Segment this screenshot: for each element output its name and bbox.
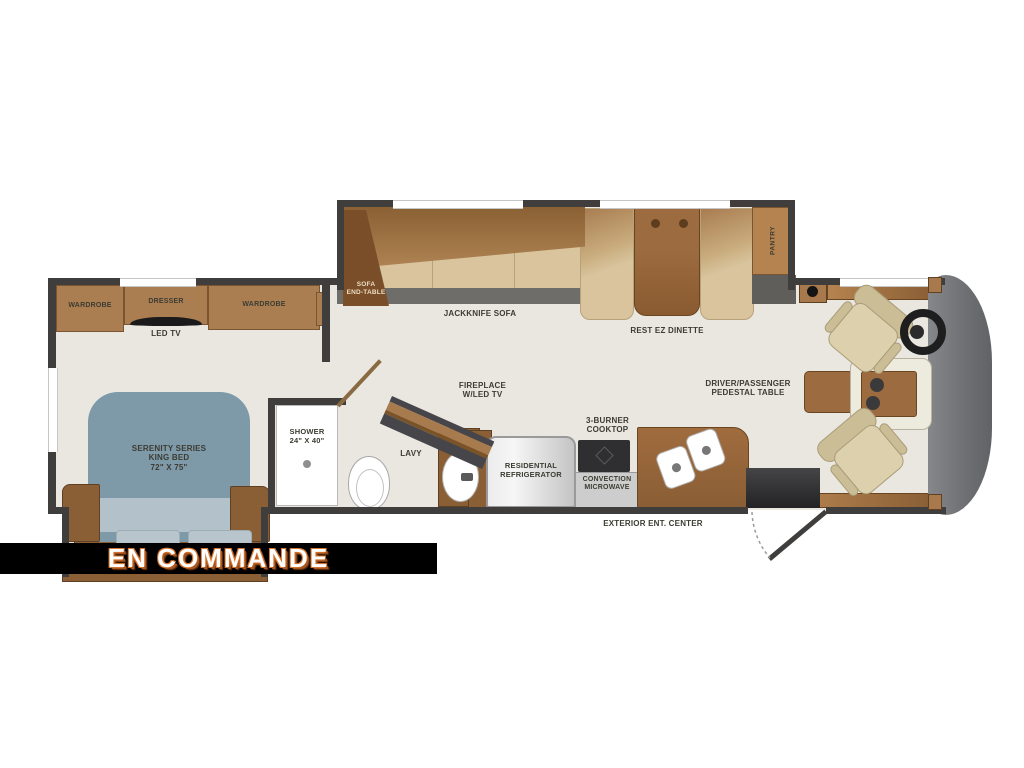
faucet-icon (461, 473, 473, 481)
bedroom-tv-icon (130, 317, 202, 326)
cap-trim (928, 494, 942, 510)
exterior-center-label: EXTERIOR ENT. CENTER (594, 519, 712, 528)
slideout-wall-left (337, 200, 344, 290)
sink-drain (671, 462, 683, 474)
cap-trim (928, 277, 942, 293)
wall-bottom-mid (266, 507, 748, 514)
bed-foot-blanket (88, 498, 250, 532)
pedestal-table-label: DRIVER/PASSENGERPEDESTAL TABLE (688, 379, 808, 398)
bed-label: SERENITY SERIESKING BED72" X 75" (88, 444, 250, 472)
door-swing-arc (740, 505, 840, 567)
cooktop (578, 440, 630, 472)
slideout-wall-right (788, 200, 795, 290)
burner-icon (595, 446, 613, 464)
shower-stall (276, 405, 338, 506)
microwave-label: CONVECTIONMICROWAVE (575, 476, 639, 493)
window (840, 278, 928, 287)
order-status-text: EN COMMANDE (108, 543, 329, 574)
dinette-seat-right (700, 208, 754, 320)
dinette-table (634, 206, 700, 316)
wardrobe-right-label: WARDROBE (208, 301, 320, 309)
steering-wheel-icon (900, 309, 946, 355)
window (393, 200, 523, 209)
window (120, 278, 196, 287)
dresser-label: DRESSER (124, 298, 208, 306)
wardrobe-left-label: WARDROBE (56, 302, 124, 310)
sofa-end-table-label: SOFAEND-TABLE (340, 281, 392, 296)
pedestal-table (804, 371, 854, 413)
table-leg (679, 219, 688, 228)
entry-stairwell (746, 468, 820, 508)
lavy-label: LAVY (382, 449, 440, 458)
dinette-seat-left (580, 208, 634, 320)
front-cap (928, 275, 992, 515)
table-leg (651, 219, 660, 228)
dinette-label: REST EZ DINETTE (600, 326, 734, 335)
sink-drain (701, 445, 713, 457)
bath-wall-top (268, 398, 346, 405)
window (48, 368, 58, 452)
rv-floorplan: SOFAEND-TABLE JACKKNIFE SOFA REST EZ DIN… (0, 0, 1024, 768)
window (600, 200, 730, 209)
pantry-label: PANTRY (753, 208, 793, 274)
bath-wall-left (268, 398, 275, 510)
bedroom-divider-wall (322, 284, 330, 362)
toilet (348, 456, 390, 510)
speaker-icon (807, 286, 818, 297)
led-tv-label: LED TV (124, 329, 208, 338)
refrigerator-label: RESIDENTIALREFRIGERATOR (486, 462, 576, 480)
cooktop-label: 3-BURNERCOOKTOP (570, 416, 645, 435)
fireplace-label: FIREPLACEW/LED TV (430, 381, 535, 400)
shower-drain (303, 460, 311, 468)
jackknife-sofa-label: JACKKNIFE SOFA (420, 309, 540, 318)
shower-label: SHOWER24" X 40" (276, 428, 338, 446)
order-status-banner: EN COMMANDE (0, 543, 437, 574)
toilet-seat (356, 469, 384, 507)
